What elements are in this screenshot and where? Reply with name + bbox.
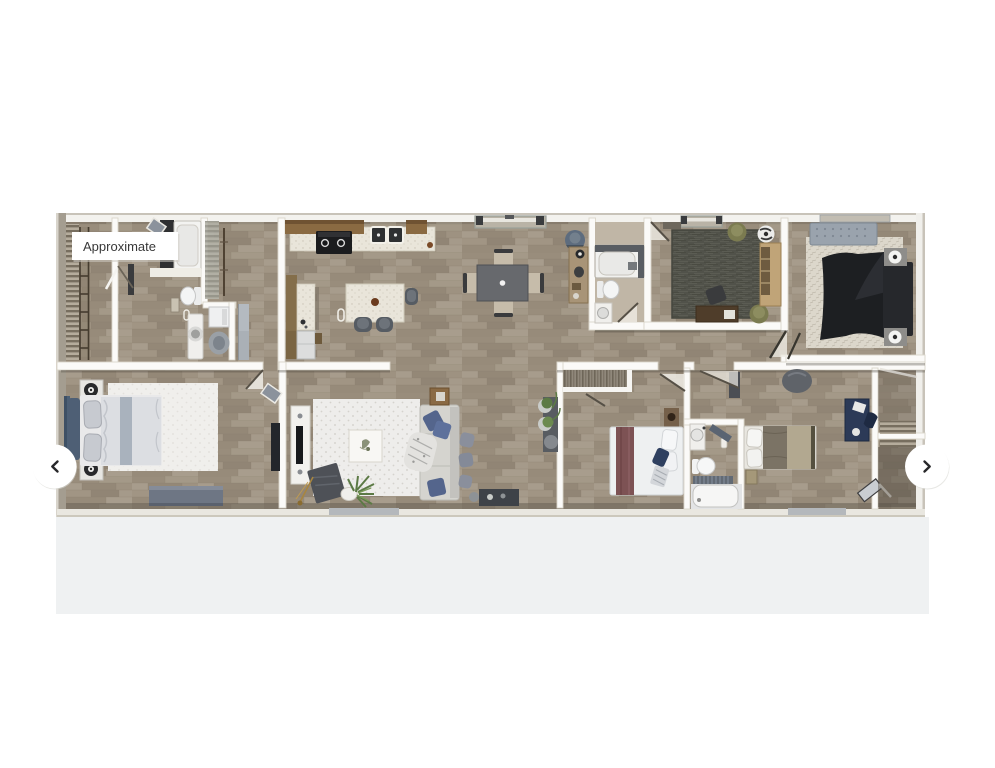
svg-text:Approximate: Approximate [83,239,156,254]
